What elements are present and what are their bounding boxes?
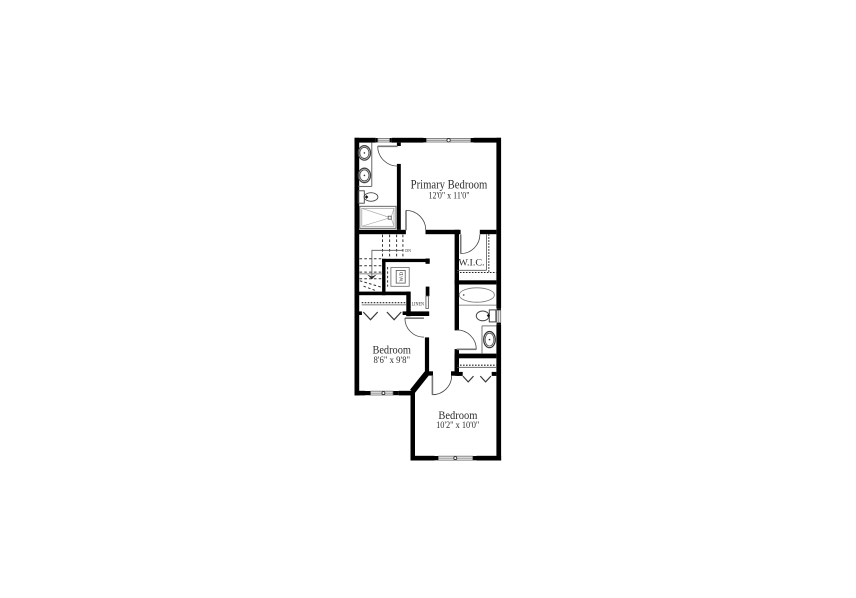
svg-text:W/D: W/D (399, 272, 405, 282)
svg-text:LINEN: LINEN (412, 302, 425, 307)
svg-text:10'2" x 10'0": 10'2" x 10'0" (436, 420, 479, 430)
svg-text:W.I.C.: W.I.C. (459, 257, 485, 267)
svg-text:12'0" x 11'0": 12'0" x 11'0" (429, 190, 470, 201)
svg-text:8'6" x 9'8": 8'6" x 9'8" (374, 355, 411, 365)
svg-text:DN: DN (405, 248, 411, 253)
